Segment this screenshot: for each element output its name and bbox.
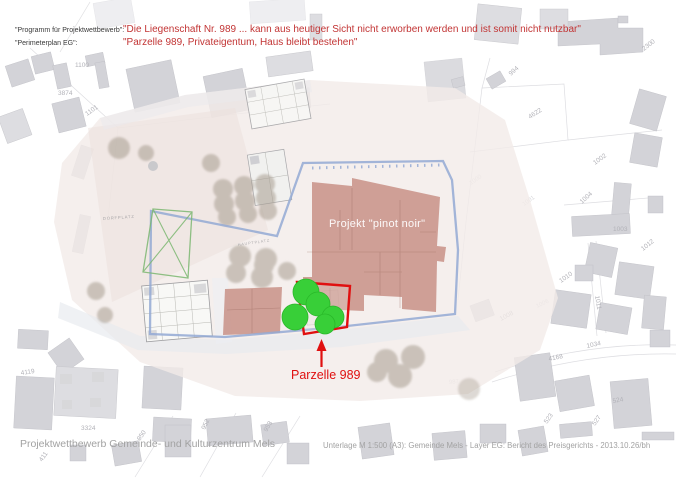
footer-title: Projektwettbewerb Gemeinde- und Kulturze… <box>20 438 275 450</box>
svg-text:4168: 4168 <box>548 353 564 363</box>
svg-text:4622: 4622 <box>527 107 543 121</box>
annotation-line1-quote: "Die Liegenschaft Nr. 989 ... kann aus h… <box>123 24 581 35</box>
site-plan-wash <box>54 80 558 401</box>
parcel-989-callout-label: Parzelle 989 <box>291 368 361 382</box>
svg-text:1100: 1100 <box>75 62 89 69</box>
footer-caption: Unterlage M 1:500 (A3): Gemeinde Mels - … <box>323 441 650 450</box>
annotation-line2-label: "Perimeterplan EG": <box>15 40 78 47</box>
svg-text:1012: 1012 <box>640 238 656 253</box>
screenshot-root: 1100 3874 1101 2300 994 4622 1002 1004 1… <box>0 0 676 478</box>
annotation-line1-label: "Programm für Projektwettbewerb": <box>15 27 124 34</box>
svg-text:3874: 3874 <box>58 90 73 97</box>
svg-text:994: 994 <box>508 65 521 78</box>
svg-text:1003: 1003 <box>613 226 628 233</box>
svg-text:3324: 3324 <box>81 425 96 432</box>
svg-text:411: 411 <box>38 450 50 463</box>
svg-text:1101: 1101 <box>84 104 100 118</box>
svg-text:1002: 1002 <box>592 152 608 166</box>
svg-text:523: 523 <box>543 412 555 425</box>
svg-text:1010: 1010 <box>558 270 574 284</box>
svg-text:2300: 2300 <box>641 38 657 53</box>
salmon-building-small <box>223 287 282 335</box>
annotation-line2-quote: "Parzelle 989, Privateigentum, Haus blei… <box>123 37 357 48</box>
fountain <box>148 161 158 171</box>
svg-text:527: 527 <box>591 414 603 427</box>
svg-text:4119: 4119 <box>20 368 35 377</box>
site-plan-map: 1100 3874 1101 2300 994 4622 1002 1004 1… <box>0 0 676 478</box>
project-pinot-noir-label: Projekt "pinot noir" <box>329 218 425 230</box>
